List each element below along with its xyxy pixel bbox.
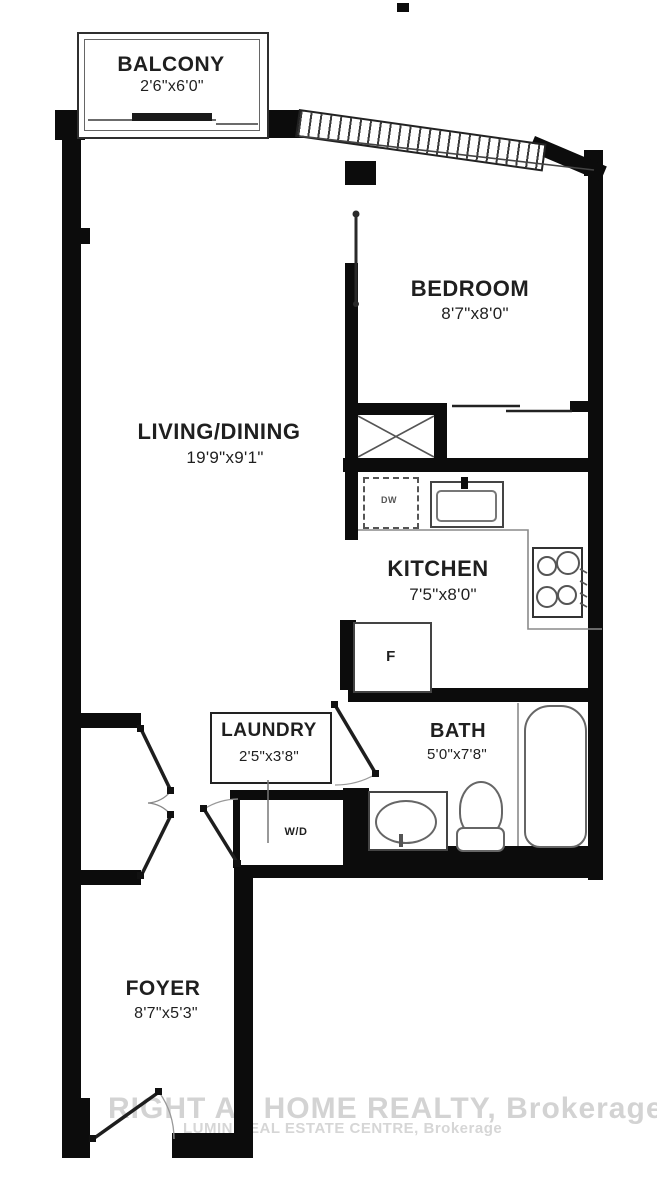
kitchen-label: KITCHEN: [387, 556, 488, 582]
bedroom-closet-x: [358, 416, 434, 457]
balcony-label: BALCONY: [117, 53, 224, 77]
bedroom-label: BEDROOM: [411, 276, 529, 302]
window-sill-line: [299, 136, 594, 170]
balcony-dims: 2'6"x6'0": [140, 78, 204, 96]
entry-door: [89, 1088, 174, 1142]
foyer-dims: 8'7"x5'3": [134, 1005, 198, 1023]
bath-dims: 5'0"x7'8": [427, 746, 487, 763]
hall-closet-doors: [137, 725, 174, 879]
bath-door: [331, 701, 379, 785]
laundry-dims: 2'5"x3'8": [239, 748, 299, 765]
dishwasher-label: DW: [381, 495, 397, 505]
laundry-label: LAUNDRY: [221, 720, 317, 742]
living-dining-dims: 19'9"x9'1": [186, 448, 263, 468]
washer-dryer-label: W/D: [285, 826, 308, 838]
balcony-sliding-door: [88, 113, 258, 124]
kitchen-dims: 7'5"x8'0": [409, 585, 477, 605]
stove-knobs: [580, 569, 587, 607]
wd-door: [200, 799, 241, 867]
bedroom-dims: 8'7"x8'0": [441, 304, 509, 324]
linework-overlay: [0, 0, 657, 1188]
bedroom-closet-sliding-door: [452, 406, 572, 411]
fridge-label: F: [386, 648, 396, 665]
floor-plan: RIGHT AT HOME REALTY, Brokerage LUMIN RE…: [0, 0, 657, 1188]
living-dining-label: LIVING/DINING: [138, 419, 301, 445]
bath-label: BATH: [430, 720, 486, 743]
foyer-label: FOYER: [126, 977, 201, 1001]
bedroom-door: [353, 211, 360, 308]
